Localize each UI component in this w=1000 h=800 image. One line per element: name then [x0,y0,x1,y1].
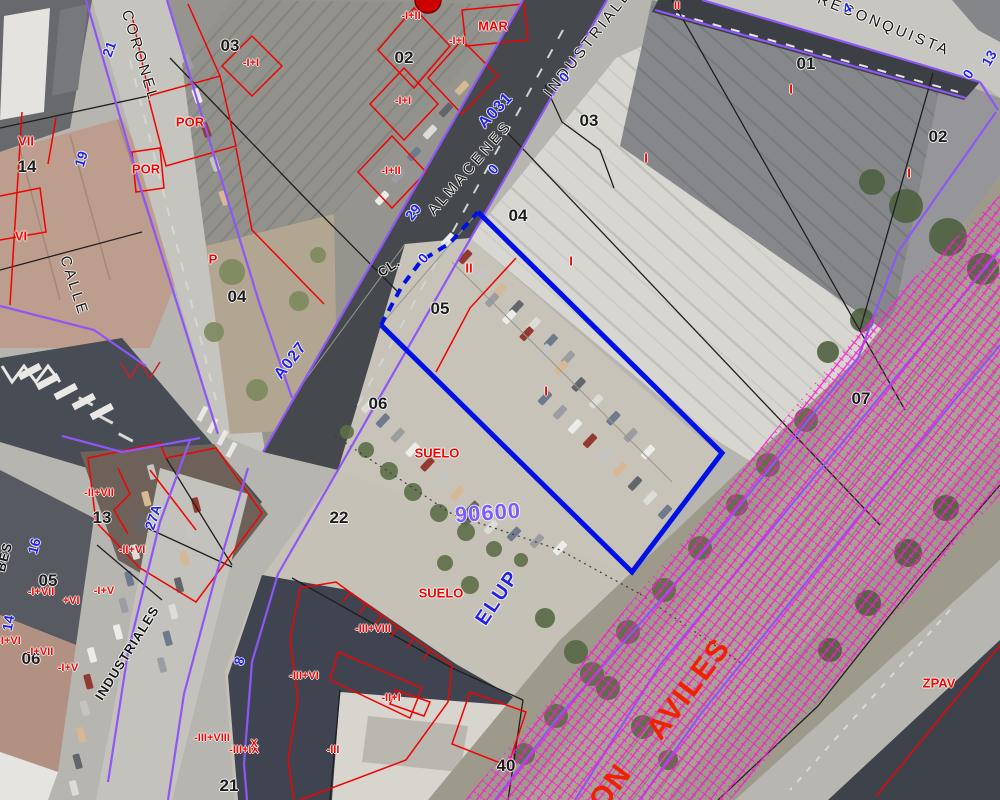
tree [289,291,309,311]
tree [358,442,374,458]
tree [219,259,245,285]
tree [340,425,354,439]
tree [430,504,448,522]
tree [404,483,422,501]
tree [486,541,502,557]
map-viewport[interactable]: 0302010302140404050607132205062140CORONE… [0,0,1000,800]
tree [310,247,326,263]
tree [535,608,555,628]
tree [859,169,885,195]
tree [514,553,528,567]
satellite-cadastral-canvas [0,0,1000,800]
tree [204,322,224,342]
tree [246,379,268,401]
tree [461,576,479,594]
tree [889,189,923,223]
tree [457,523,475,541]
tree [380,462,398,480]
tree [437,555,453,571]
